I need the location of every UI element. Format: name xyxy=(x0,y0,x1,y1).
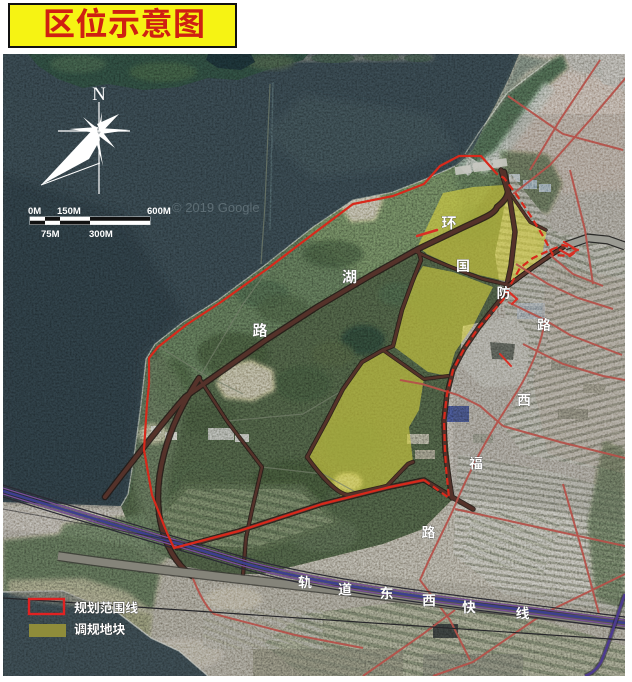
svg-text:© 2019 Google: © 2019 Google xyxy=(172,200,260,215)
svg-text:600M: 600M xyxy=(147,206,171,217)
svg-text:N: N xyxy=(92,84,106,105)
svg-text:300M: 300M xyxy=(89,229,113,240)
svg-text:150M: 150M xyxy=(57,206,81,217)
svg-text:0M: 0M xyxy=(28,206,41,217)
svg-text:75M: 75M xyxy=(41,229,60,240)
